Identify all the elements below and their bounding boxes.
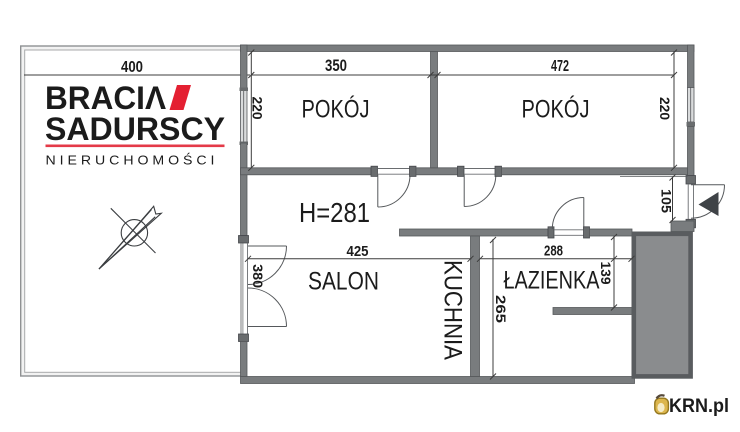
svg-text:POKÓJ: POKÓJ <box>302 95 370 124</box>
svg-text:SADURSCY: SADURSCY <box>45 111 225 147</box>
svg-text:220: 220 <box>657 97 672 120</box>
svg-text:350: 350 <box>325 56 347 75</box>
svg-text:139: 139 <box>598 262 613 285</box>
svg-text:ŁAZIENKA: ŁAZIENKA <box>504 267 600 295</box>
svg-text:400: 400 <box>121 59 143 76</box>
svg-text:KUCHNIA: KUCHNIA <box>439 260 467 360</box>
svg-text:425: 425 <box>347 243 369 260</box>
svg-text:H=281: H=281 <box>299 197 370 228</box>
svg-text:N I E R U C H O M O Ś C I: N I E R U C H O M O Ś C I <box>46 152 215 167</box>
svg-text:KRN.pl: KRN.pl <box>669 396 729 417</box>
svg-text:380: 380 <box>250 264 265 288</box>
svg-text:472: 472 <box>551 58 569 75</box>
svg-text:265: 265 <box>493 295 508 324</box>
svg-text:SALON: SALON <box>308 268 379 296</box>
svg-text:POKÓJ: POKÓJ <box>522 95 590 124</box>
svg-text:288: 288 <box>544 243 563 260</box>
svg-text:220: 220 <box>249 97 264 120</box>
svg-text:105: 105 <box>659 189 674 214</box>
